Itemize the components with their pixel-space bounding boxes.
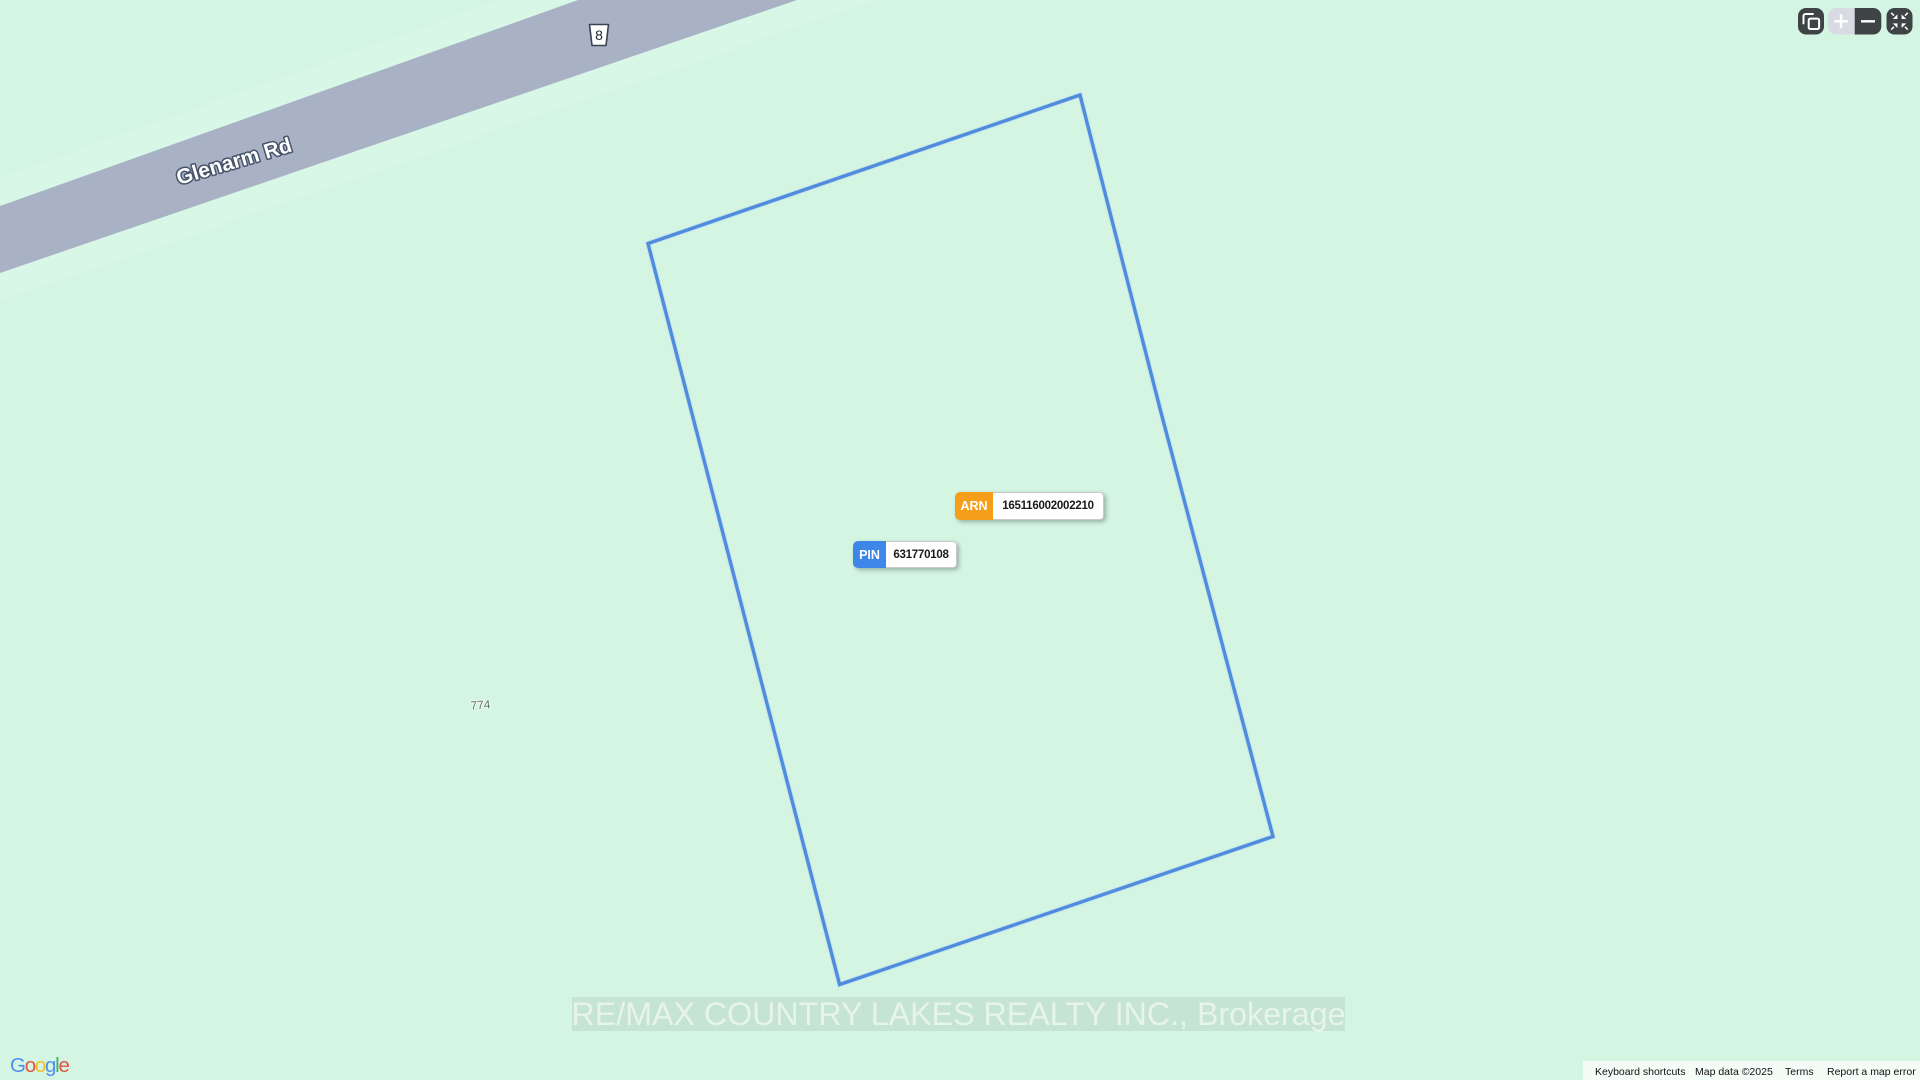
svg-text:8: 8	[595, 27, 603, 43]
svg-text:774: 774	[470, 697, 491, 712]
